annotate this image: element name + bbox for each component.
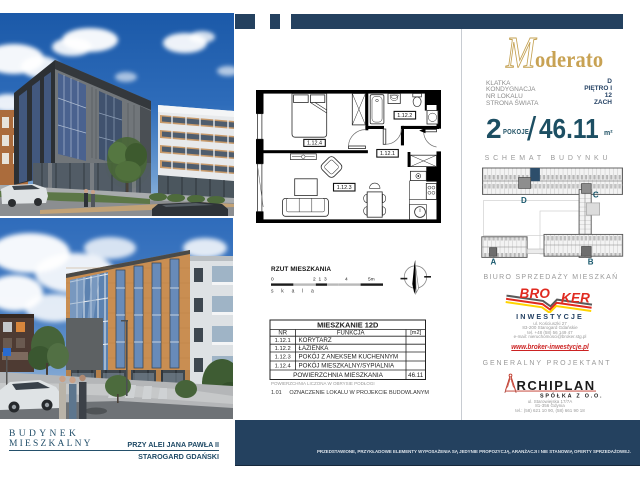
svg-text:1.12.4: 1.12.4 (275, 364, 292, 370)
svg-text:1.12.1: 1.12.1 (380, 151, 395, 157)
svg-text:46.11: 46.11 (408, 372, 424, 379)
svg-text:NR: NR (278, 331, 287, 337)
svg-text:1.12.1: 1.12.1 (275, 338, 291, 344)
svg-text:POWIERZCHNIA MIESZKANIA: POWIERZCHNIA MIESZKANIA (293, 372, 384, 379)
svg-text:1: 1 (319, 277, 322, 283)
svg-text:1.12.3: 1.12.3 (337, 185, 352, 191)
svg-text:B: B (588, 258, 594, 267)
svg-text:C: C (593, 191, 599, 200)
svg-text:FUNKCJA: FUNKCJA (337, 331, 365, 337)
svg-text:A: A (491, 258, 497, 267)
svg-text:MIESZKANIE 12D: MIESZKANIE 12D (317, 321, 379, 330)
svg-text:1.12.4: 1.12.4 (307, 141, 322, 147)
svg-text:0: 0 (271, 277, 274, 283)
svg-text:BRO: BRO (520, 286, 551, 301)
svg-text:s k a l a: s k a l a (271, 289, 317, 295)
svg-text:[m2]: [m2] (410, 330, 421, 336)
svg-text:POKÓJ MIESZKALNY/SYPIALNIA: POKÓJ MIESZKALNY/SYPIALNIA (299, 363, 395, 370)
svg-text:1.12.2: 1.12.2 (397, 113, 412, 119)
svg-text:1.12.2: 1.12.2 (275, 346, 291, 352)
svg-text:D: D (521, 196, 527, 205)
svg-text:1.12.3: 1.12.3 (275, 355, 291, 361)
svg-text:2: 2 (313, 277, 316, 283)
svg-text:3: 3 (324, 277, 327, 283)
svg-text:KORYTARZ: KORYTARZ (299, 337, 332, 344)
svg-text:POKÓJ Z ANEKSEM KUCHENNYM: POKÓJ Z ANEKSEM KUCHENNYM (299, 354, 399, 361)
svg-text:ŁAZIENKA: ŁAZIENKA (299, 345, 330, 352)
svg-text:4: 4 (345, 277, 348, 283)
svg-text:KER: KER (561, 290, 590, 305)
svg-text:SPÓŁKA Z O.O.: SPÓŁKA Z O.O. (540, 391, 602, 399)
svg-text:5m: 5m (368, 277, 375, 283)
